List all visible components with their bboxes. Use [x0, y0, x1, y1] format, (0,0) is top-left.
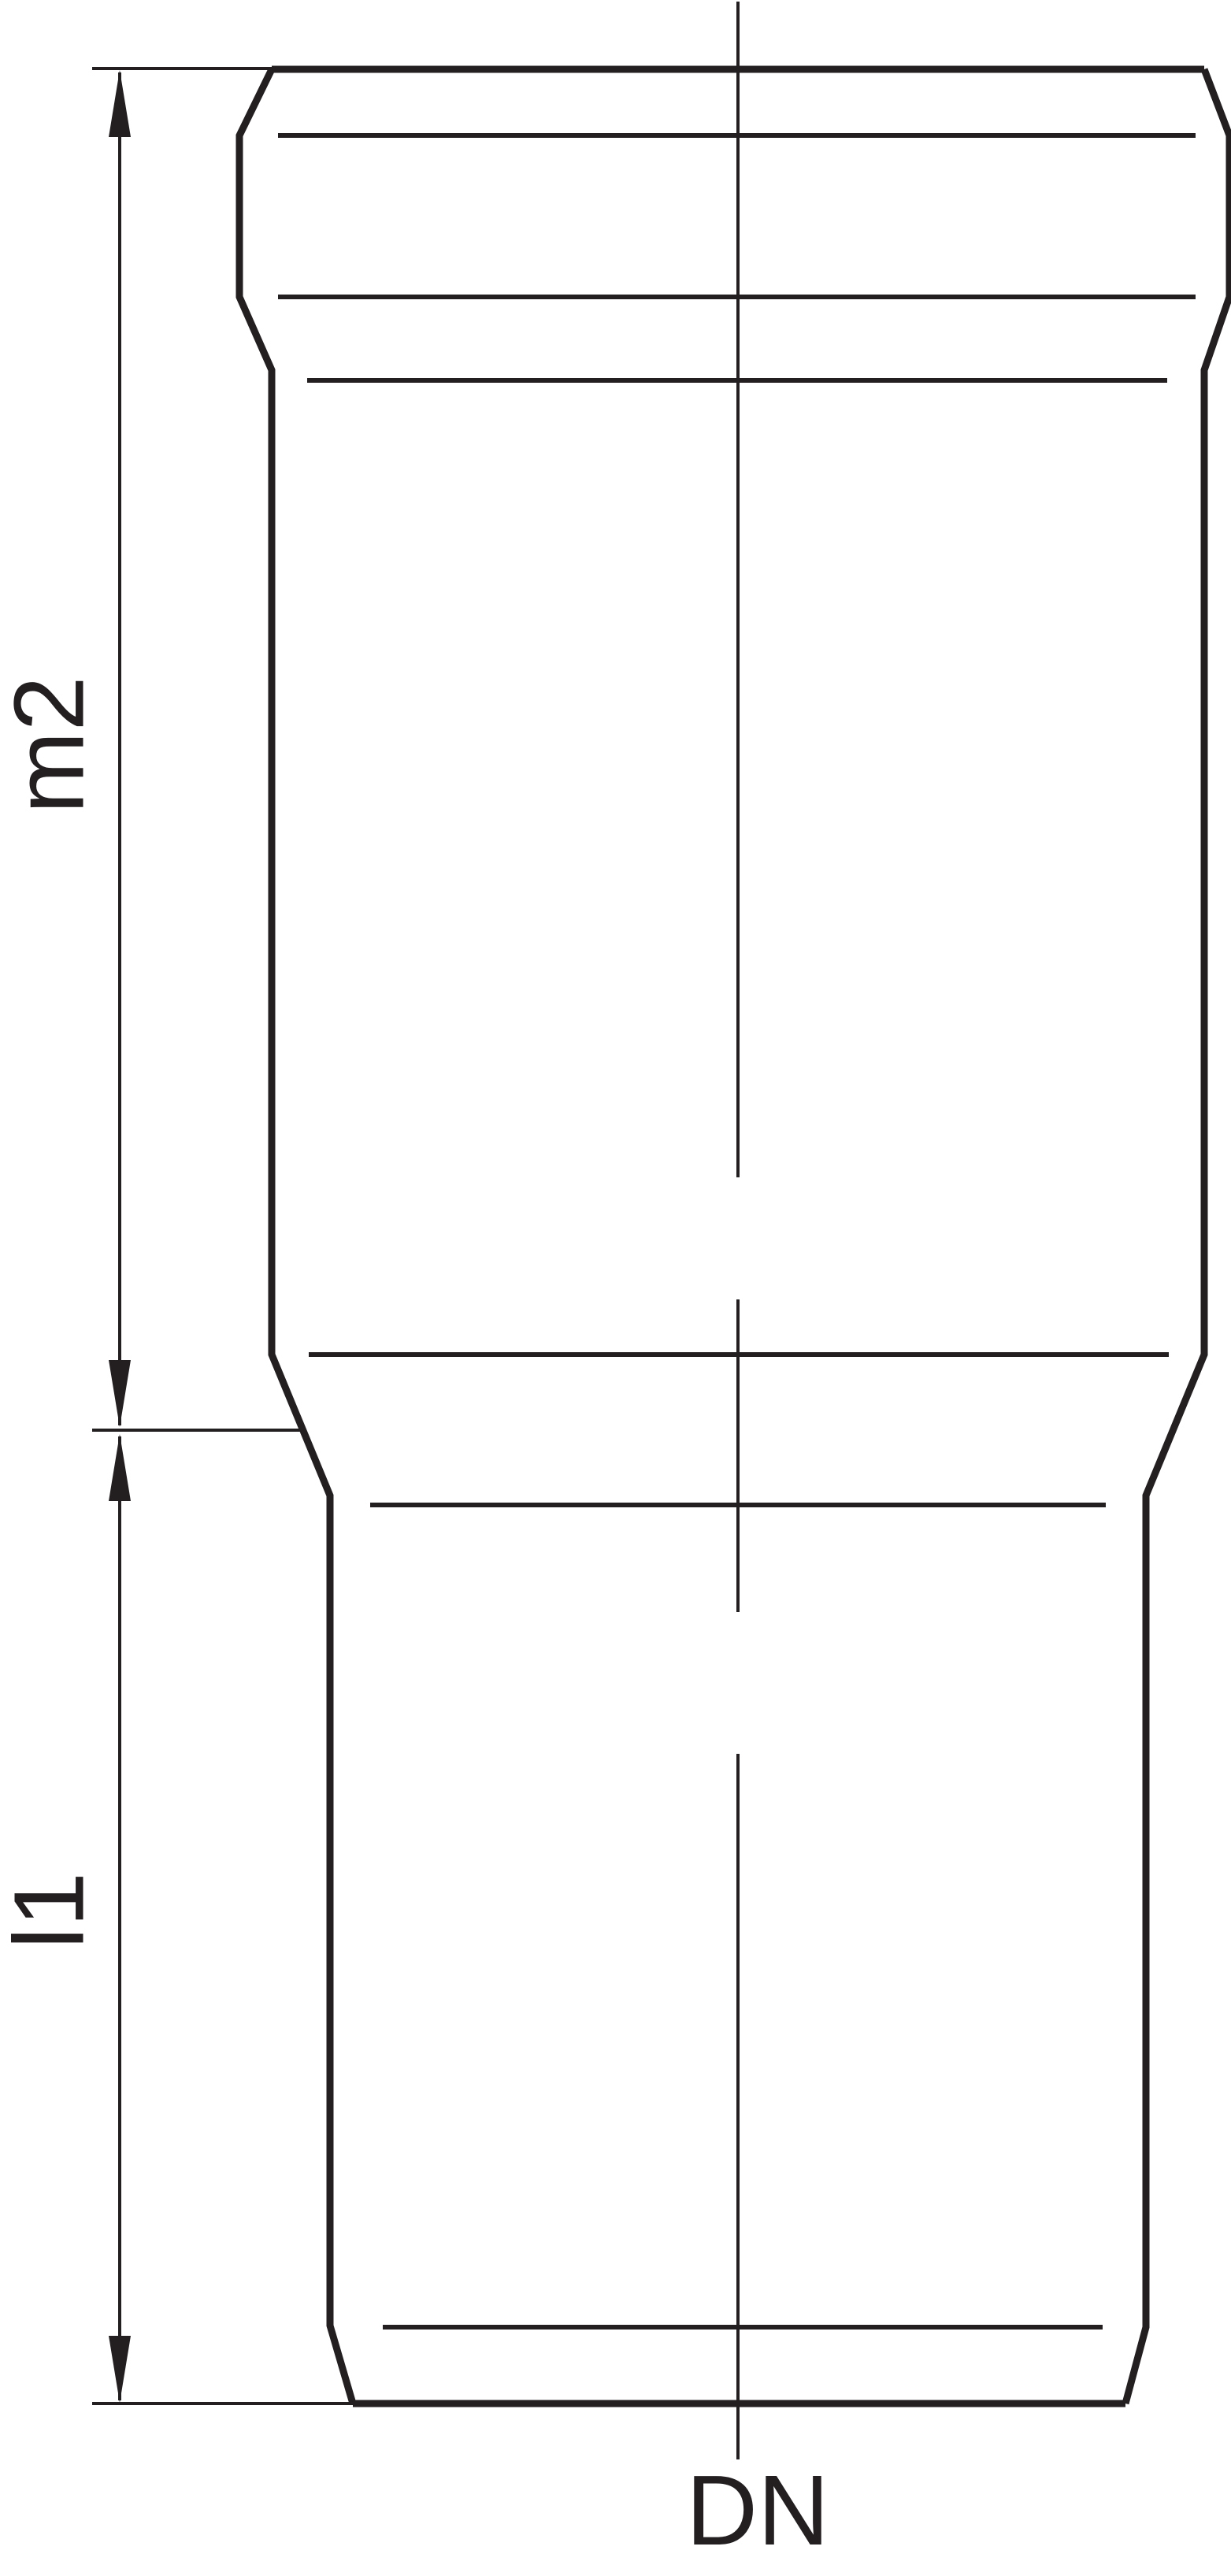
dimension-l1: l1 [0, 1434, 353, 2404]
drawing-canvas: m2 l1 DN [0, 0, 1231, 2576]
dimension-label-m2: m2 [0, 676, 105, 814]
dimension-label-l1: l1 [0, 1872, 105, 1949]
outline-left [239, 69, 353, 2404]
diameter-label-dn: DN [686, 2455, 829, 2566]
arrowhead-l1-bottom [109, 2336, 131, 2403]
dimension-m2: m2 [0, 69, 303, 1430]
arrowhead-m2-bottom [109, 1360, 131, 1427]
pipe-fitting-diagram: m2 l1 DN [0, 0, 1231, 2576]
arrowhead-l1-top [109, 1434, 131, 1501]
page: { "drawing": { "labels": { "dim_upper": … [0, 0, 1231, 2576]
outline-right [1125, 69, 1229, 2404]
part-outline [239, 69, 1229, 2404]
arrowhead-m2-top [109, 70, 131, 137]
